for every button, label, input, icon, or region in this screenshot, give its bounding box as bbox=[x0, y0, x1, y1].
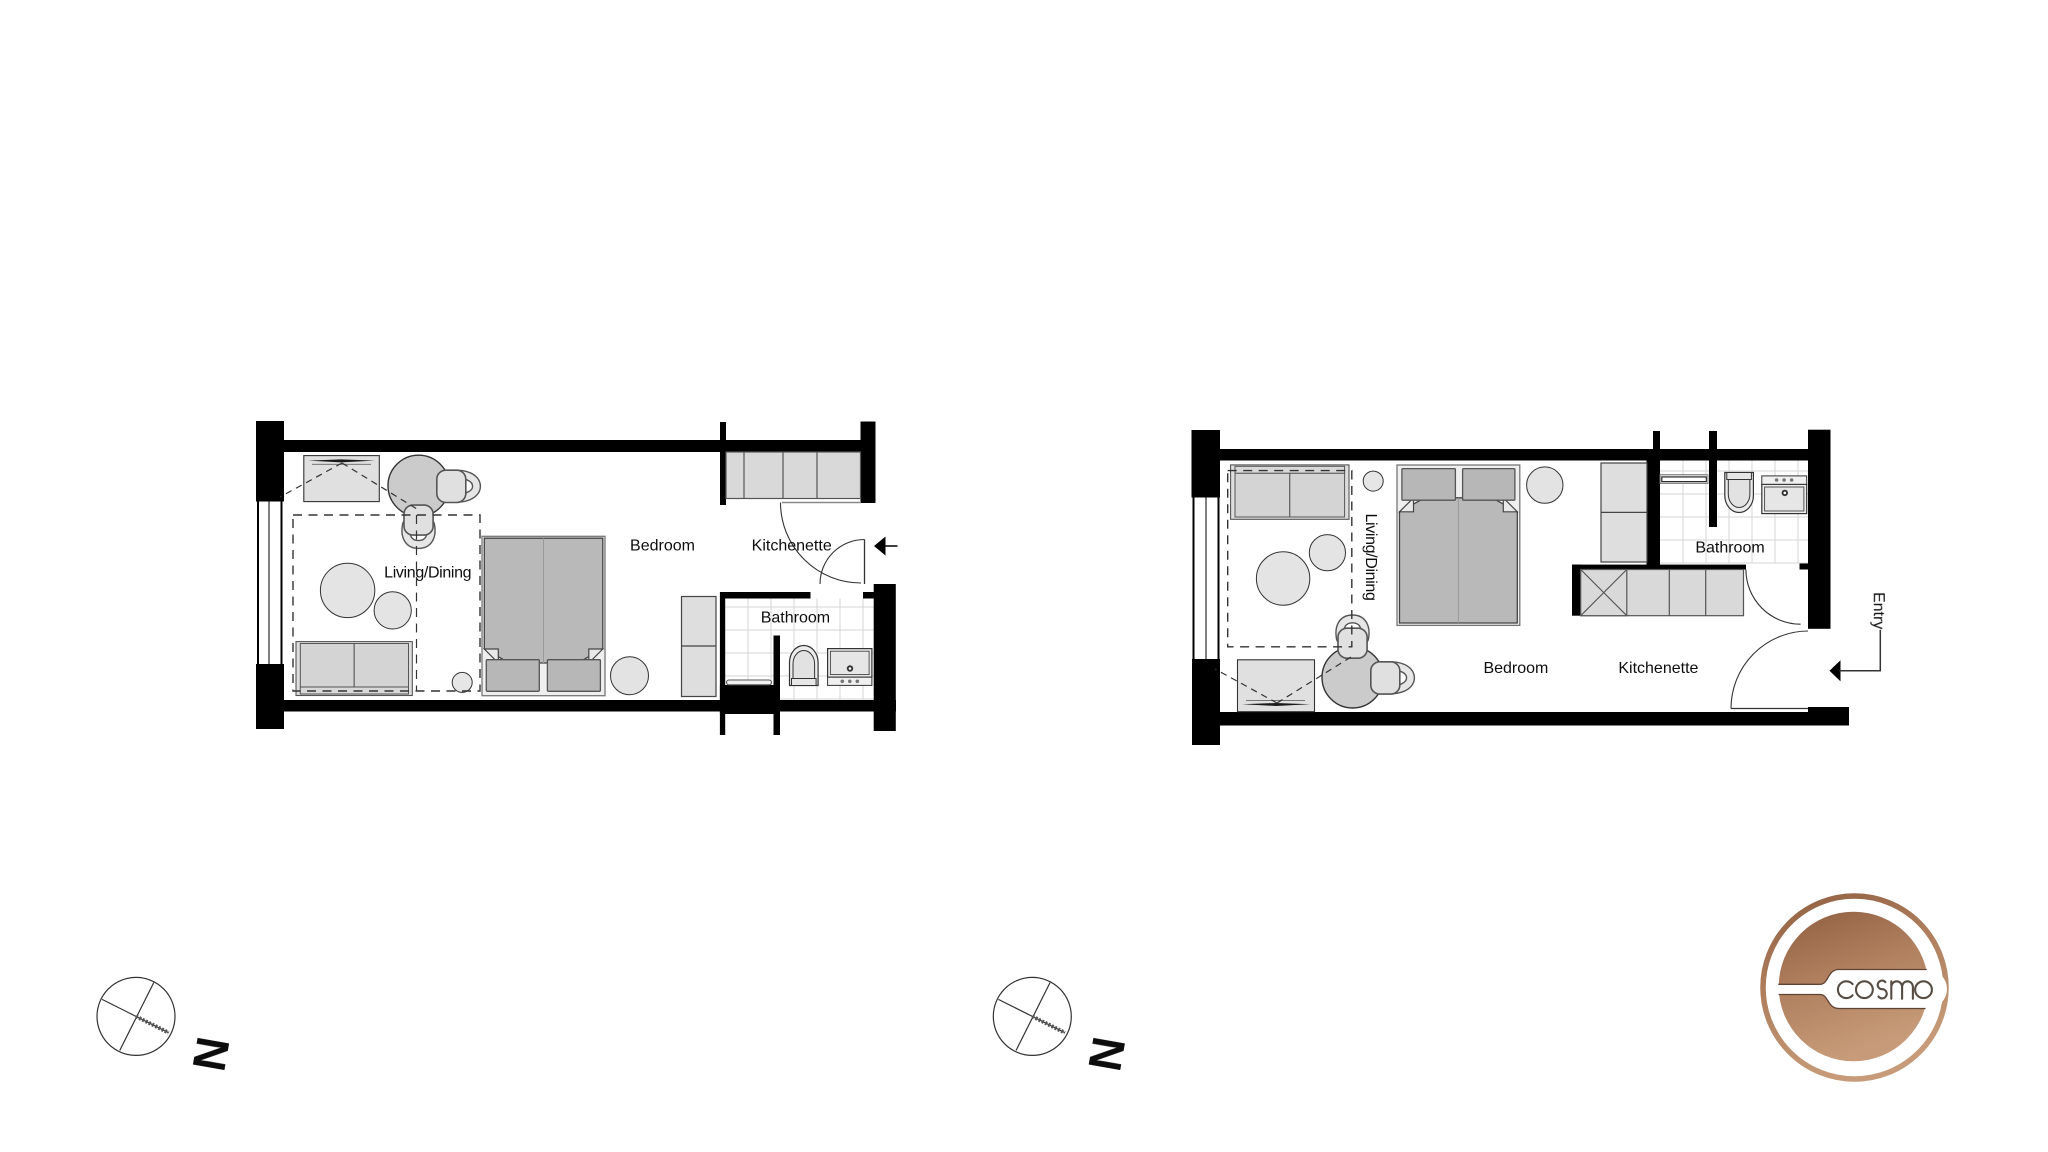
svg-text:Bathroom: Bathroom bbox=[1695, 540, 1764, 557]
svg-text:Entry: Entry bbox=[1870, 592, 1887, 629]
svg-text:Bedroom: Bedroom bbox=[630, 538, 695, 555]
svg-text:Kitchenette: Kitchenette bbox=[1618, 660, 1698, 677]
svg-text:Bedroom: Bedroom bbox=[1483, 660, 1548, 677]
svg-text:Bathroom: Bathroom bbox=[761, 610, 830, 627]
svg-text:Living/Dining: Living/Dining bbox=[384, 565, 471, 582]
svg-text:Living/Dining: Living/Dining bbox=[1362, 513, 1379, 600]
svg-text:Kitchenette: Kitchenette bbox=[752, 538, 832, 555]
